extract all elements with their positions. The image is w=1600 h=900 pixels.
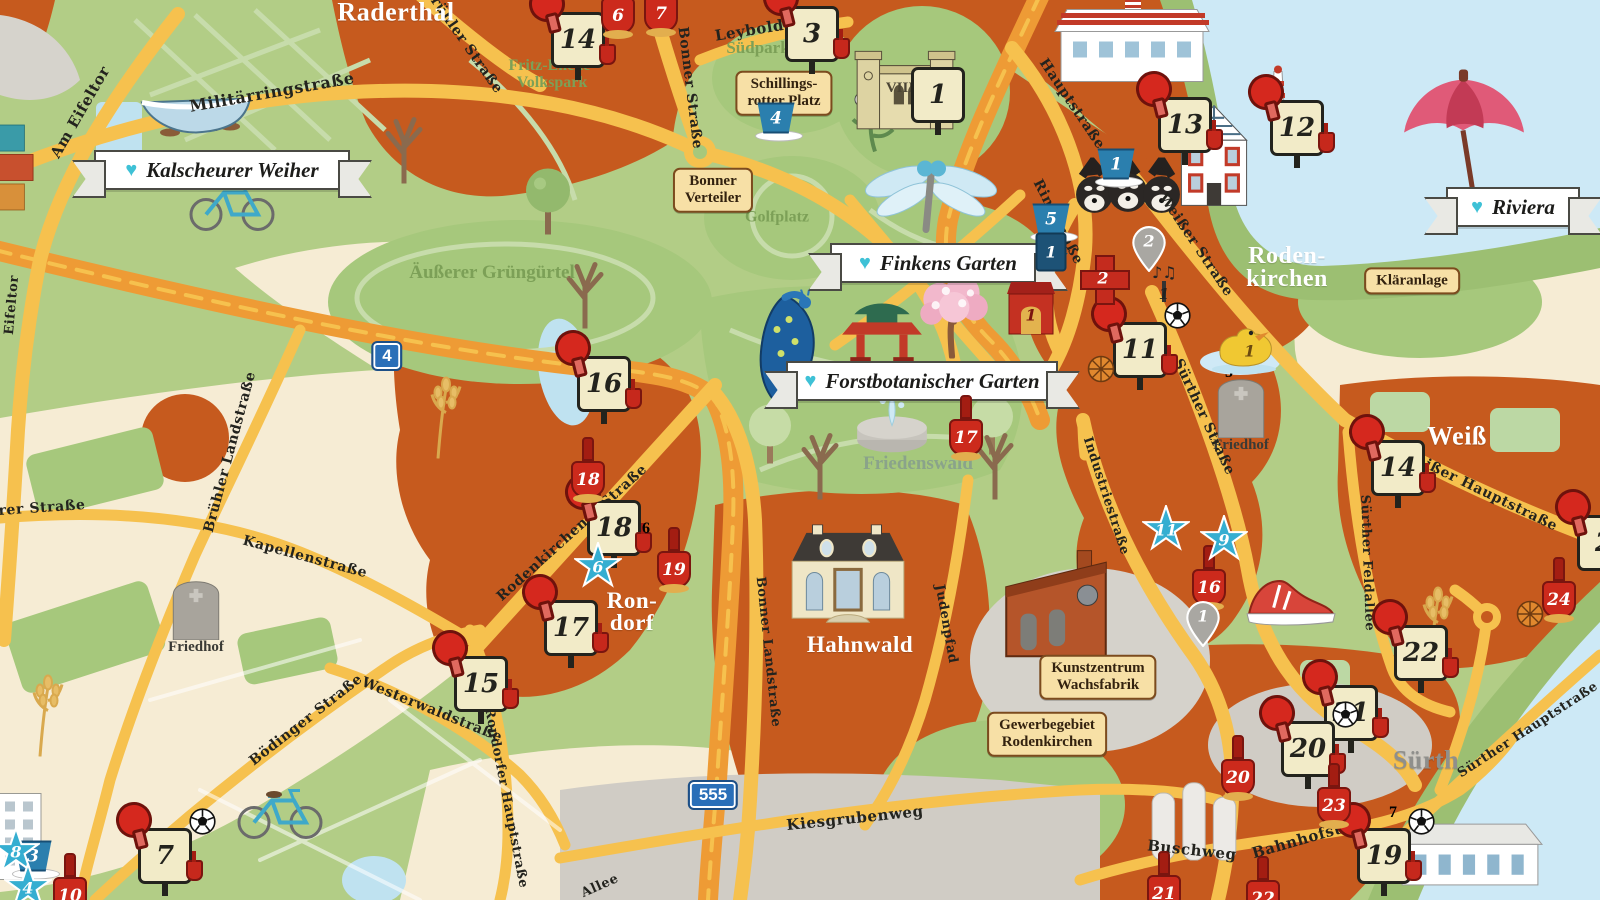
marker-number: 15 (463, 669, 499, 699)
shovel-icon (186, 860, 203, 881)
street-label-rondorfer-hauptstra-e: Rondorfer Hauptstraße (481, 707, 531, 890)
marker-number: 13 (1167, 110, 1203, 140)
marker-number: 10 (58, 886, 82, 900)
street-label-br-hler-landstra-e: Brühler Landstraße (201, 370, 259, 535)
region-label-roden-kirchen: Roden- kirchen (1246, 245, 1328, 291)
shovel-blade: 19 (657, 551, 691, 588)
marker-paddle-sign-14[interactable]: 14 (551, 12, 605, 68)
marker-number: 20 (1226, 768, 1250, 788)
villa-icon (782, 614, 914, 631)
shovel-handle (668, 527, 680, 551)
shovel-icon (1405, 860, 1422, 881)
marker-number: 16 (1197, 578, 1221, 598)
pillar-icon: 1 (1036, 233, 1067, 272)
sand-bucket-icon: 4 (755, 103, 797, 134)
marker-number: 1 (1045, 243, 1056, 262)
banner-finkens-garten: ♥Finkens Garten (830, 243, 1046, 283)
marker-star-11[interactable]: 11 (1142, 505, 1190, 553)
green-square-icon: 6 (642, 520, 650, 537)
shovel-icon (833, 38, 850, 59)
marker-number: 14 (560, 25, 596, 55)
illustrated-city-map: MilitärringstraßeAm EifeltorEifeltorBrüh… (0, 0, 1600, 900)
park-label-golfplatz: Golfplatz (745, 210, 809, 227)
heart-icon: ♥ (125, 160, 137, 180)
tree-light-icon (744, 455, 796, 472)
marker-number: 1 (1197, 607, 1208, 626)
marker-number: 12 (1279, 113, 1315, 143)
bicycle-illustration (232, 781, 328, 848)
shovel-icon (1372, 717, 1389, 738)
marker-number: 4 (22, 878, 33, 897)
green-square-icon: 7 (1389, 804, 1397, 821)
shovel-icon (625, 388, 642, 409)
marker-number: 14 (1380, 453, 1416, 483)
street-label-am-eifeltor: Am Eifeltor (46, 63, 113, 161)
gravestone-label: Friedhof (165, 639, 227, 656)
sand-pile (573, 494, 603, 503)
marker-number: 18 (596, 513, 632, 543)
star-icon (1142, 540, 1190, 557)
shovel-blade: 22 (1246, 880, 1280, 900)
marker-piano-1[interactable]: ♪♫1 (1162, 283, 1166, 301)
music-note-icon: ♪♫ (1152, 263, 1177, 282)
plaque-kl-ranlage: Kläranlage (1364, 267, 1460, 294)
puppet-theater-icon (1005, 323, 1057, 340)
marker-number: 2 (1143, 232, 1154, 251)
marker-number: 19 (1366, 841, 1402, 871)
marker-shovel-21[interactable]: 21 (1147, 851, 1181, 900)
wheat-icon (424, 446, 468, 463)
shovel-blade: 21 (1147, 875, 1181, 900)
marker-number: 8 (10, 842, 21, 861)
shovel-icon (1419, 472, 1436, 493)
dragonfly-icon (860, 221, 1000, 238)
marker-paddle-sign-12[interactable]: 12 (1270, 100, 1324, 156)
waterworks-illustration (1046, 0, 1218, 95)
marker-number: 9 (1218, 530, 1229, 549)
banner-text: Finkens Garten (880, 251, 1017, 276)
shovel-blade: 20 (1221, 759, 1255, 796)
street-label-kiesgrubenweg: Kiesgrubenweg (786, 802, 925, 834)
marker-number: 1 (1244, 342, 1255, 361)
heart-icon: ♥ (1471, 197, 1483, 217)
containers-icon (0, 204, 40, 221)
shovel-blade: 18 (571, 461, 605, 498)
tree-bare-icon (378, 171, 430, 188)
sand-pile (1223, 792, 1253, 801)
region-label-ron-dorf: Ron- dorf (607, 590, 658, 634)
marker-number: 1 (1025, 305, 1036, 324)
shovel-icon (1318, 132, 1335, 153)
marker-bucket-1[interactable]: 1 (1095, 149, 1143, 188)
sand-pile (603, 30, 633, 39)
marker-paddle-sign-17[interactable]: 17 (544, 600, 598, 656)
wheat-icon (26, 744, 70, 761)
marker-paddle-sign-22[interactable]: 22 (1394, 625, 1448, 681)
marker-number: 16 (586, 369, 622, 399)
marker-number: 19 (662, 560, 686, 580)
shovel-blade: 17 (949, 419, 983, 456)
marker-star-6[interactable]: 6 (574, 542, 622, 590)
street-label-bonner-landstra-e: Bonner Landstraße (753, 576, 784, 728)
bicycle-icon (232, 830, 328, 847)
marker-sign-1[interactable]: 1 (911, 67, 965, 123)
street-label-eifeltor: Eifeltor (2, 274, 22, 335)
marker-number: 11 (1155, 520, 1177, 539)
dragonfly-illustration (860, 154, 1000, 239)
map-overlay: MilitärringstraßeAm EifeltorEifeltorBrüh… (0, 0, 1600, 900)
tree-bare-illustration (378, 112, 430, 189)
wheat-illustration (26, 671, 70, 762)
street-label-milit-rringstra-e: Militärringstraße (188, 68, 356, 116)
marker-number: 22 (1251, 889, 1275, 900)
marker-shovel-18[interactable]: 18 (571, 437, 605, 503)
shovel-handle (960, 395, 972, 419)
region-label-hahnwald: Hahnwald (807, 634, 913, 656)
sand-pile (646, 28, 676, 37)
marker-number: 18 (576, 470, 600, 490)
marker-green-square-7[interactable]: 7 (1389, 804, 1397, 822)
wheat-illustration (424, 373, 468, 464)
banner-forstbotanischer-garten: ♥Forstbotanischer Garten (786, 361, 1058, 401)
street-label-industriestra-e: Industriestraße (1080, 435, 1132, 557)
shovel-icon (599, 44, 616, 65)
marker-paddle-sign-3[interactable]: 3 (785, 6, 839, 62)
basketball-icon (1516, 600, 1544, 633)
villa-illustration (782, 525, 914, 632)
shovel-handle (64, 853, 76, 877)
marker-shovel-24[interactable]: 24 (1542, 557, 1576, 623)
marker-number: 24 (1547, 590, 1571, 610)
marker-number: 5 (1045, 209, 1057, 229)
marker-star-4[interactable]: 4 (4, 863, 52, 900)
marker-star-9[interactable]: 9 (1200, 515, 1248, 563)
shovel-blade: 6 (601, 0, 635, 34)
bicycle-icon (184, 222, 280, 239)
map-pin-icon (1186, 634, 1220, 651)
shovel-handle (1553, 557, 1565, 581)
park-label-u-erer-gr-ng-rtel: Äußerer Grüngürtel (409, 263, 575, 283)
plaque-gewerbegebiet-rodenkirchen: Gewerbegebiet Rodenkirchen (987, 712, 1107, 757)
basketball-icon (1087, 355, 1115, 388)
region-label-wei: Weiß (1427, 425, 1487, 450)
banner-kalscheurer-weiher: ♥Kalscheurer Weiher (94, 150, 350, 190)
heart-icon: ♥ (859, 253, 871, 273)
tree-green-illustration (520, 167, 576, 244)
shovel-handle (582, 437, 594, 461)
star-icon (574, 577, 622, 594)
marker-paddle-sign-15[interactable]: 15 (454, 656, 508, 712)
marker-number: 6 (612, 6, 624, 26)
marker-number: 11 (1122, 335, 1158, 365)
soccer-icon (1408, 808, 1435, 840)
marker-shovel-20[interactable]: 20 (1221, 735, 1255, 801)
banner-riviera: ♥Riviera (1446, 187, 1580, 227)
sand-pile (951, 452, 981, 461)
banner-text: Kalscheurer Weiher (146, 158, 319, 183)
shovel-handle (1257, 856, 1269, 880)
marker-number: 4 (770, 108, 782, 128)
shovel-icon (1206, 129, 1223, 150)
raccoons-icon (1072, 217, 1184, 234)
marker-number: 6 (592, 557, 603, 576)
rubber-duck-icon (1209, 362, 1279, 379)
tree-bare-icon (794, 487, 846, 504)
street-label-bonner-stra-e: Bonner Straße (675, 26, 706, 150)
shovel-icon (1442, 657, 1459, 678)
sneaker-icon (1243, 618, 1337, 635)
halftimber-icon (1173, 199, 1255, 216)
plaque-bonner-verteiler: Bonner Verteiler (673, 168, 753, 213)
cherry-illustration (909, 273, 995, 364)
marker-pillar-1[interactable]: 1 (1036, 233, 1067, 272)
marker-shovel-6[interactable]: 6 (601, 0, 635, 39)
star-icon (1200, 550, 1248, 567)
marker-number: 23 (1322, 796, 1346, 816)
street-label-kapellenstra-e: Kapellenstraße (241, 533, 369, 582)
street-label-allee: Allee (579, 871, 621, 900)
shovel-icon (1161, 354, 1178, 375)
banner-text: Riviera (1492, 195, 1555, 220)
shovel-blade: 24 (1542, 581, 1576, 618)
street-label-b-dinger-stra-e: Bödinger Straße (246, 671, 365, 769)
marker-paddle-sign-2[interactable]: 2 (1577, 515, 1600, 571)
marker-paddle-sign-13[interactable]: 13 (1158, 97, 1212, 153)
marker-theater-1[interactable]: 1 (1005, 280, 1057, 336)
marker-shovel-19[interactable]: 19 (657, 527, 691, 593)
soccer-icon (1164, 302, 1191, 334)
marker-number: 22 (1403, 638, 1439, 668)
cherry-icon (909, 346, 995, 363)
shovel-icon (502, 688, 519, 709)
marker-number: 17 (954, 428, 978, 448)
banner-text: Forstbotanischer Garten (825, 369, 1039, 394)
marker-number: 1 (1110, 154, 1122, 174)
marker-paddle-sign-11[interactable]: 11 (1113, 322, 1167, 378)
marker-paddle-sign-16[interactable]: 16 (577, 356, 631, 412)
shovel-blade: 23 (1317, 787, 1351, 824)
marker-number: 2 (1097, 269, 1108, 288)
street-label-rer-stra-e: rer Straße (0, 497, 86, 519)
marker-shovel-22[interactable]: 22 (1246, 856, 1280, 900)
soccer-icon (1332, 701, 1359, 733)
marker-paddle-sign-14[interactable]: 14 (1371, 440, 1425, 496)
marker-number: 1 (1159, 285, 1169, 303)
route-shield-4: 4 (371, 341, 402, 371)
sign-board: 1 (911, 67, 965, 123)
marker-number: 7 (655, 4, 667, 24)
shovel-handle (1232, 735, 1244, 759)
region-label-s-rth: Sürth (1393, 749, 1459, 774)
marker-number: 1 (929, 80, 947, 110)
shovel-handle (1158, 851, 1170, 875)
marker-cross-2[interactable]: 2 (1080, 255, 1126, 301)
marker-paddle-sign-19[interactable]: 19 (1357, 828, 1411, 884)
shovel-blade: 10 (53, 877, 87, 900)
rowboat-icon (134, 128, 258, 145)
marker-number: 2 (1595, 528, 1600, 558)
marker-number: 20 (1290, 734, 1326, 764)
shovel-handle (1328, 763, 1340, 787)
marker-duck-1[interactable]: 1 (1209, 321, 1279, 375)
marker-green-square-6[interactable]: 6 (642, 520, 650, 538)
street-label-s-rther-hauptstra-e: Sürther Hauptstraße (1455, 679, 1600, 781)
route-shield-555: 555 (688, 780, 738, 810)
marker-number: 21 (1152, 884, 1176, 900)
sand-bucket-icon: 1 (1095, 149, 1137, 180)
marker-number: 7 (156, 841, 174, 871)
marker-paddle-sign-7[interactable]: 7 (138, 828, 192, 884)
street-label-judenpfad: Judenpfad (932, 583, 961, 664)
containers-illustration (0, 119, 40, 222)
marker-number: 3 (803, 19, 821, 49)
region-label-raderthal: Raderthal (337, 1, 454, 26)
sneaker-illustration (1243, 573, 1337, 636)
sand-bucket-icon: 5 (1030, 204, 1072, 235)
marker-number: 17 (553, 613, 589, 643)
marker-bucket-4[interactable]: 4 (755, 103, 803, 142)
umbrella-illustration (1398, 70, 1530, 207)
tree-bare-illustration (794, 428, 846, 505)
shovel-icon (592, 632, 609, 653)
sand-pile (659, 584, 689, 593)
tree-bare-icon (969, 487, 1021, 504)
tree-green-icon (520, 226, 576, 243)
plaque-kunstzentrum-wachsfabrik: Kunstzentrum Wachsfabrik (1039, 655, 1156, 700)
heart-icon: ♥ (805, 371, 817, 391)
marker-number: 7 (1389, 804, 1397, 821)
park-label-s-dpark: Südpark (726, 39, 789, 57)
marker-shovel-23[interactable]: 23 (1317, 763, 1351, 829)
marker-shovel-7[interactable]: 7 (644, 0, 678, 37)
marker-number: 6 (642, 520, 650, 537)
gravestone-illustration: Friedhof (165, 568, 227, 656)
marker-shovel-17[interactable]: 17 (949, 395, 983, 461)
marker-pin-1[interactable]: 1 (1186, 601, 1220, 647)
soccer-icon (189, 808, 216, 840)
sand-pile (1319, 820, 1349, 829)
sand-pile (1544, 614, 1574, 623)
